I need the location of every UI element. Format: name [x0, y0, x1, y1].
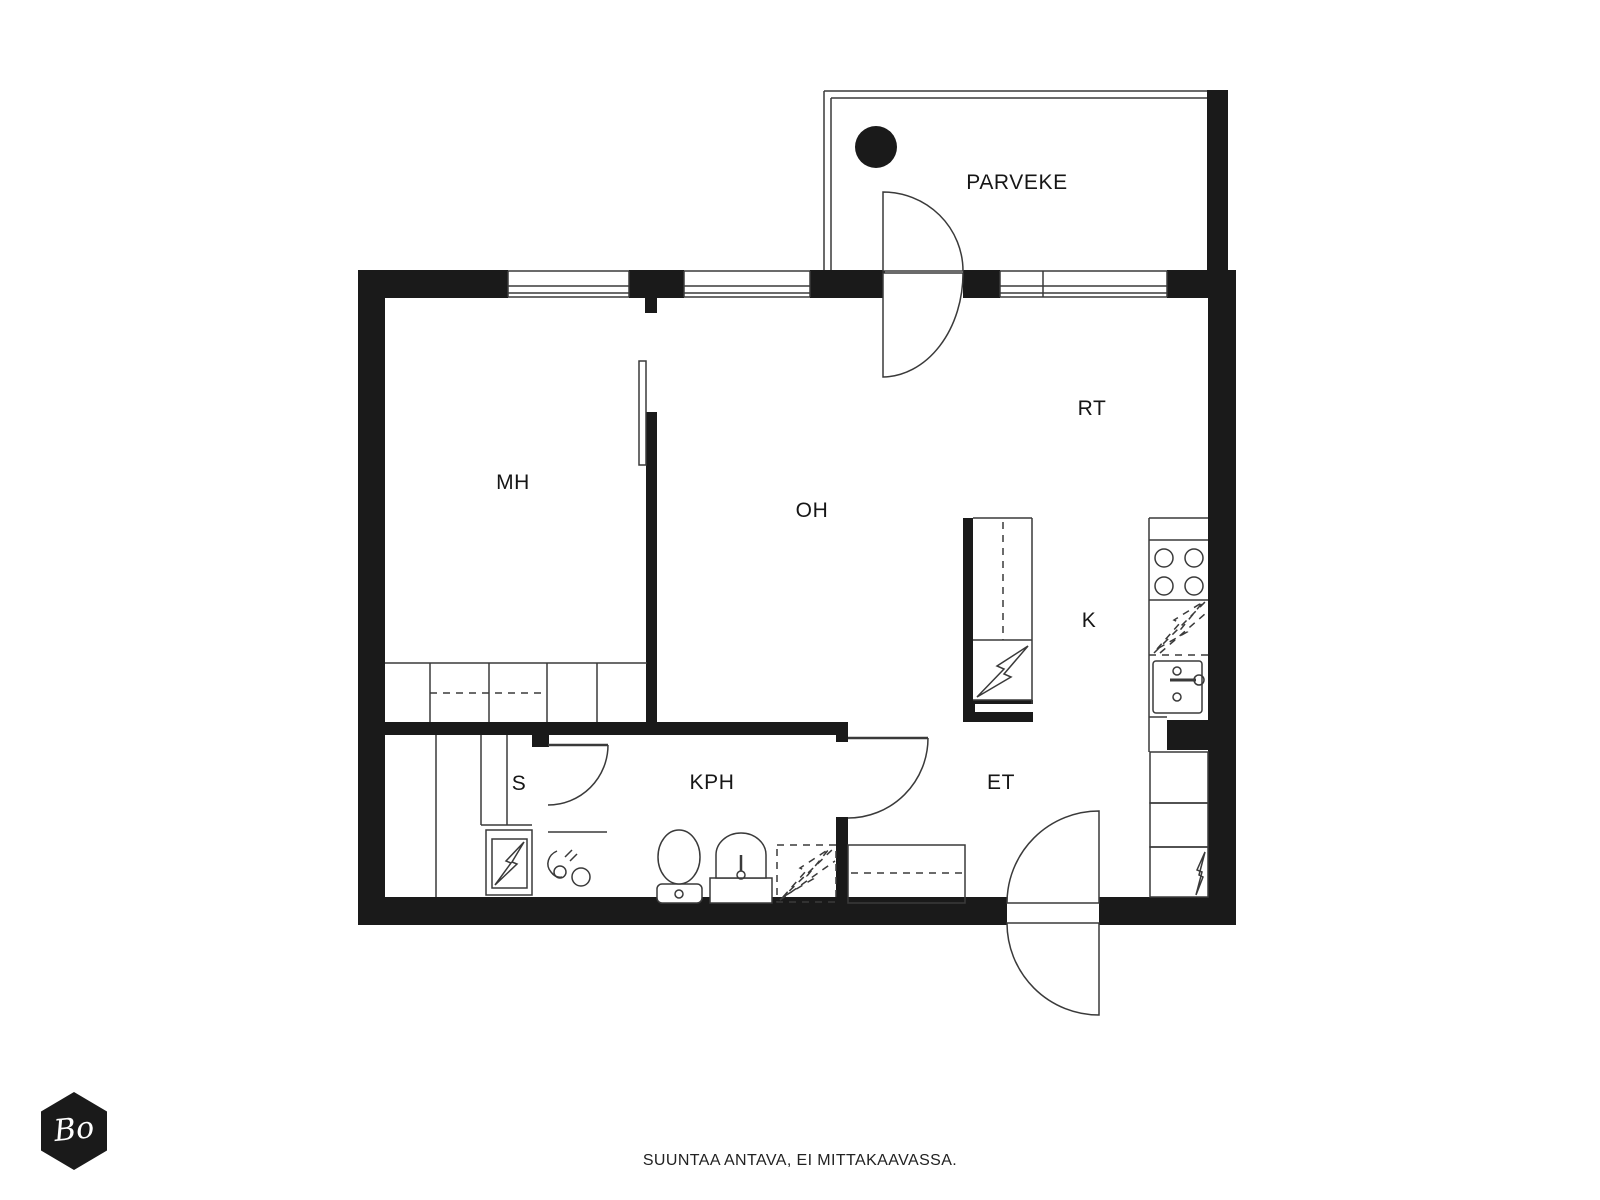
wall-left [358, 270, 385, 925]
room-label-k: K [1082, 609, 1097, 633]
dishwasher-reservation [1154, 601, 1206, 653]
interior-walls [358, 298, 1208, 897]
lightning-bolt-icon [495, 842, 524, 885]
mh-sliding-door-leaf [639, 361, 646, 465]
balcony-door [883, 192, 963, 377]
fridge-cabinet-column [1150, 752, 1208, 897]
wall-sauna-door-stub [532, 722, 549, 747]
shower-mixer-icon [548, 851, 562, 877]
window-mh [508, 270, 629, 298]
door-swing-icon [1007, 923, 1099, 1015]
room-label-et: ET [987, 771, 1015, 795]
wall-island-bottom-slot [975, 704, 1033, 712]
floorplan-page: PARVEKE MH OH RT K ET KPH S Bo SUUNTAA A… [0, 0, 1600, 1200]
room-label-oh: OH [796, 499, 829, 523]
dashed-lightning-bolt-icon [1157, 602, 1203, 649]
lightning-bolt-icon [977, 646, 1028, 697]
et-bench [848, 845, 965, 903]
sauna-heater [486, 830, 532, 895]
washbasin-icon [710, 833, 772, 903]
kitchen-counter [1149, 518, 1208, 752]
window-rt [1000, 270, 1167, 298]
door-swing-icon [883, 273, 963, 377]
floorplan-drawing [0, 0, 1600, 1200]
stove-icon [1155, 549, 1203, 595]
kph-door [848, 738, 928, 818]
room-label-mh: MH [496, 471, 530, 495]
wall-mh-oh-partition [646, 412, 657, 722]
outer-walls [358, 270, 1236, 925]
wall-bottom-right-of-door [1099, 897, 1236, 925]
balcony-right-wall [1207, 90, 1228, 271]
balcony-table-icon [855, 126, 897, 168]
room-label-parveke: PARVEKE [966, 171, 1067, 195]
toilet-icon [657, 830, 702, 903]
wall-kph-door-top-stub [836, 722, 848, 742]
entry-fixtures [848, 845, 965, 903]
wall-top-3 [810, 270, 885, 298]
mh-wardrobe [385, 663, 647, 722]
window-oh [684, 270, 810, 298]
wall-right [1208, 270, 1236, 925]
door-swing-icon [1007, 811, 1099, 903]
room-label-kph: KPH [690, 771, 735, 795]
island-cabinet [973, 518, 1032, 704]
shower [548, 832, 607, 886]
door-swing-icon [548, 745, 608, 805]
wall-kph-et-lower [836, 817, 848, 897]
logo-text: Bo [52, 1110, 96, 1149]
sink-icon [1153, 661, 1204, 713]
door-swing-icon [883, 192, 963, 271]
washing-machine-reservation [777, 845, 836, 902]
wall-oh-kph-horizontal [358, 722, 836, 735]
entrance-door [1007, 811, 1099, 1015]
door-swing-icon [848, 738, 928, 818]
room-label-s: S [512, 772, 527, 796]
lightning-bolt-icon [1196, 852, 1205, 895]
bathroom-fixtures [548, 830, 836, 903]
sauna-fixtures [436, 735, 532, 897]
wall-top-2 [629, 270, 684, 298]
wall-island-left [963, 518, 973, 722]
room-label-rt: RT [1078, 397, 1107, 421]
sauna-door [548, 745, 608, 805]
footer-disclaimer: SUUNTAA ANTAVA, EI MITTAKAAVASSA. [643, 1152, 957, 1170]
wall-kitchen-notch [1167, 720, 1208, 750]
wall-top-4 [963, 270, 1000, 298]
doors [548, 192, 1099, 1015]
wall-stub-above-mh-door [645, 298, 657, 313]
brand-logo: Bo [41, 1092, 107, 1170]
